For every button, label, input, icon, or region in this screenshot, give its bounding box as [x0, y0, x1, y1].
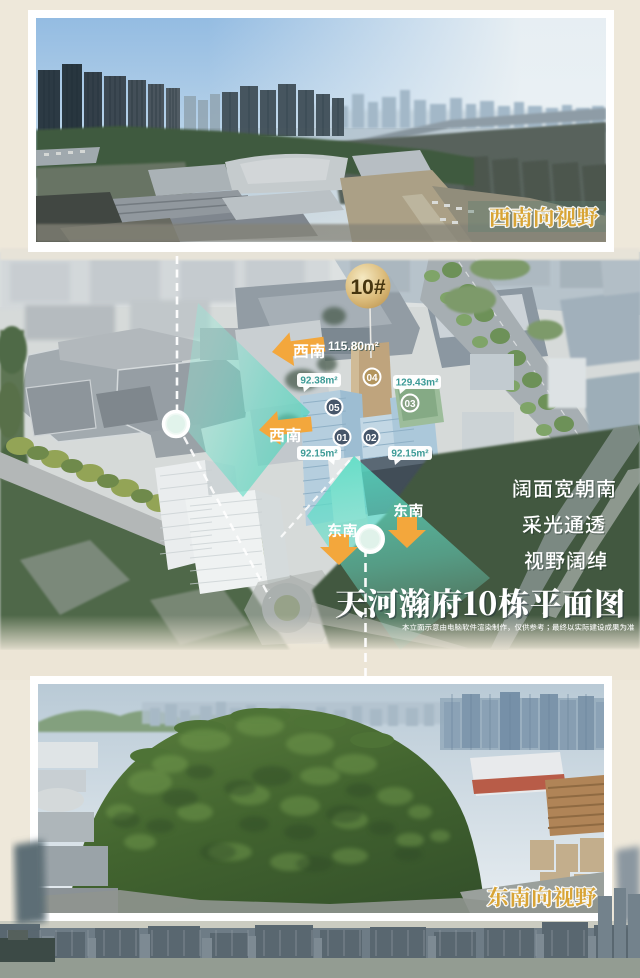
svg-text:02: 02 [365, 433, 377, 444]
svg-text:92.38m²: 92.38m² [300, 376, 338, 387]
svg-text:04: 04 [366, 373, 378, 384]
svg-text:92.15m²: 92.15m² [391, 449, 429, 460]
svg-text:05: 05 [328, 403, 340, 414]
svg-text:129.43m²: 129.43m² [396, 378, 439, 389]
svg-text:92.15m²: 92.15m² [300, 449, 338, 460]
svg-text:03: 03 [404, 399, 416, 410]
svg-text:115.80m²: 115.80m² [328, 339, 379, 353]
svg-text:10#: 10# [350, 276, 385, 299]
svg-text:01: 01 [336, 433, 348, 444]
